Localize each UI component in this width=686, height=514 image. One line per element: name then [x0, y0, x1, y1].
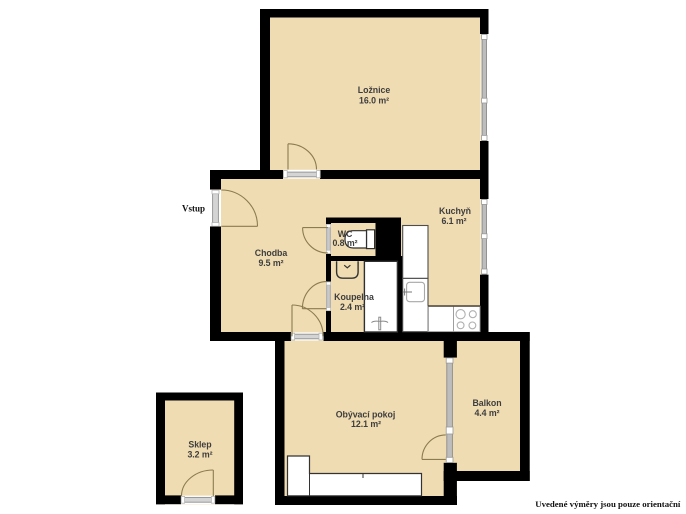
svg-text:Sklep: Sklep	[188, 440, 212, 450]
svg-text:Balkon: Balkon	[472, 398, 501, 408]
svg-text:12.1 m²: 12.1 m²	[351, 419, 381, 429]
svg-text:16.0 m²: 16.0 m²	[359, 96, 389, 106]
svg-text:2.4 m²: 2.4 m²	[340, 302, 365, 312]
svg-text:Vstup: Vstup	[182, 204, 205, 214]
svg-text:Obývací pokoj: Obývací pokoj	[336, 410, 395, 420]
svg-text:Ložnice: Ložnice	[358, 85, 391, 95]
svg-text:6.1 m²: 6.1 m²	[441, 216, 466, 226]
svg-text:0.8 m²: 0.8 m²	[332, 238, 357, 248]
svg-text:Kuchyň: Kuchyň	[439, 206, 471, 216]
svg-text:Uvedené výměry jsou pouze orie: Uvedené výměry jsou pouze orientační	[535, 499, 681, 509]
svg-text:9.5 m²: 9.5 m²	[258, 258, 283, 268]
svg-text:4.4 m²: 4.4 m²	[474, 408, 499, 418]
svg-text:3.2 m²: 3.2 m²	[187, 450, 212, 460]
svg-text:Chodba: Chodba	[255, 248, 288, 258]
svg-text:Koupelna: Koupelna	[334, 292, 374, 302]
